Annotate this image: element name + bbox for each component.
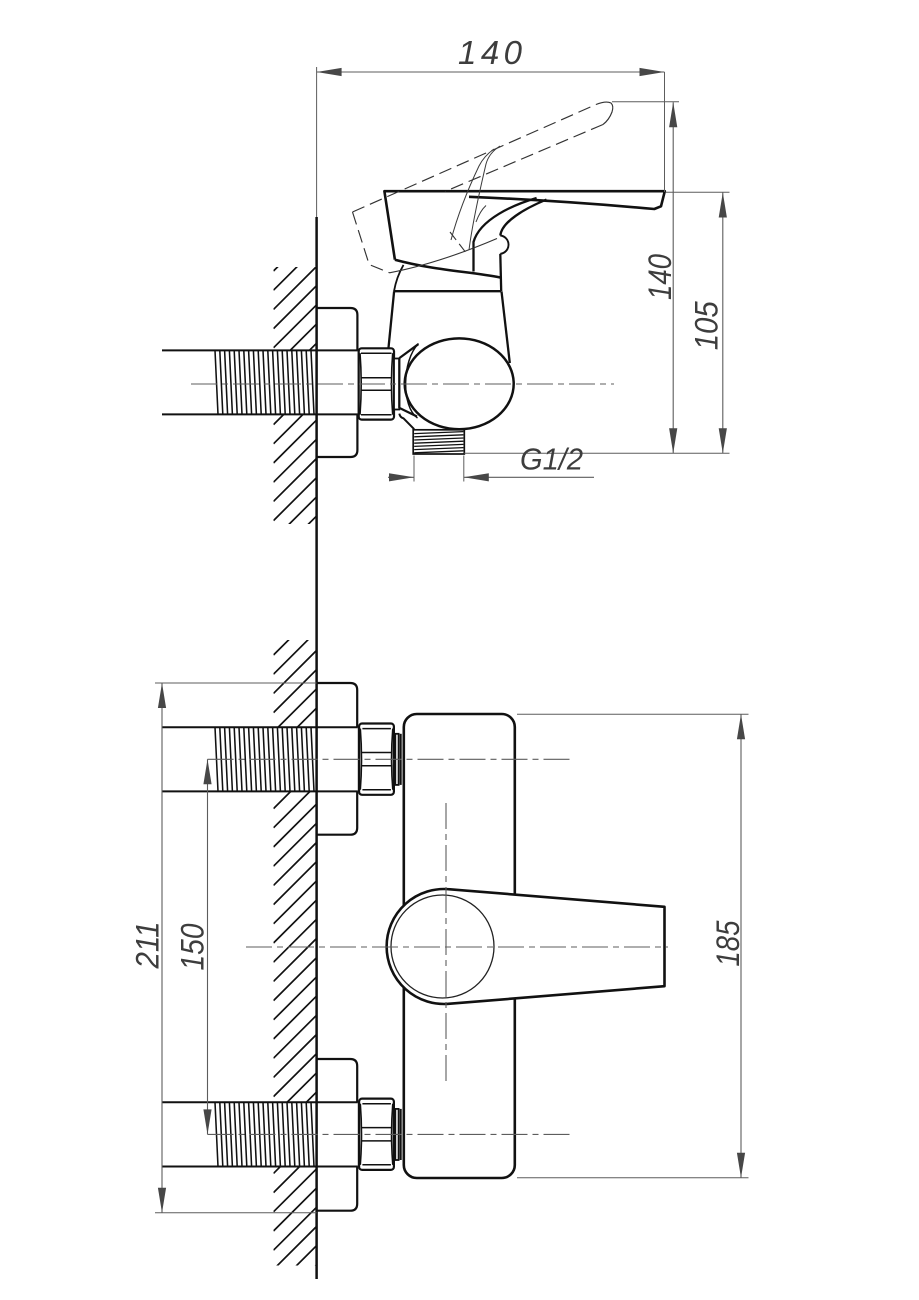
svg-text:140: 140 xyxy=(458,34,523,71)
svg-text:G1/2: G1/2 xyxy=(520,442,583,477)
svg-text:150: 150 xyxy=(175,923,211,970)
svg-text:140: 140 xyxy=(642,254,678,300)
svg-text:185: 185 xyxy=(710,920,746,966)
svg-text:211: 211 xyxy=(130,922,166,970)
svg-text:105: 105 xyxy=(689,301,725,350)
